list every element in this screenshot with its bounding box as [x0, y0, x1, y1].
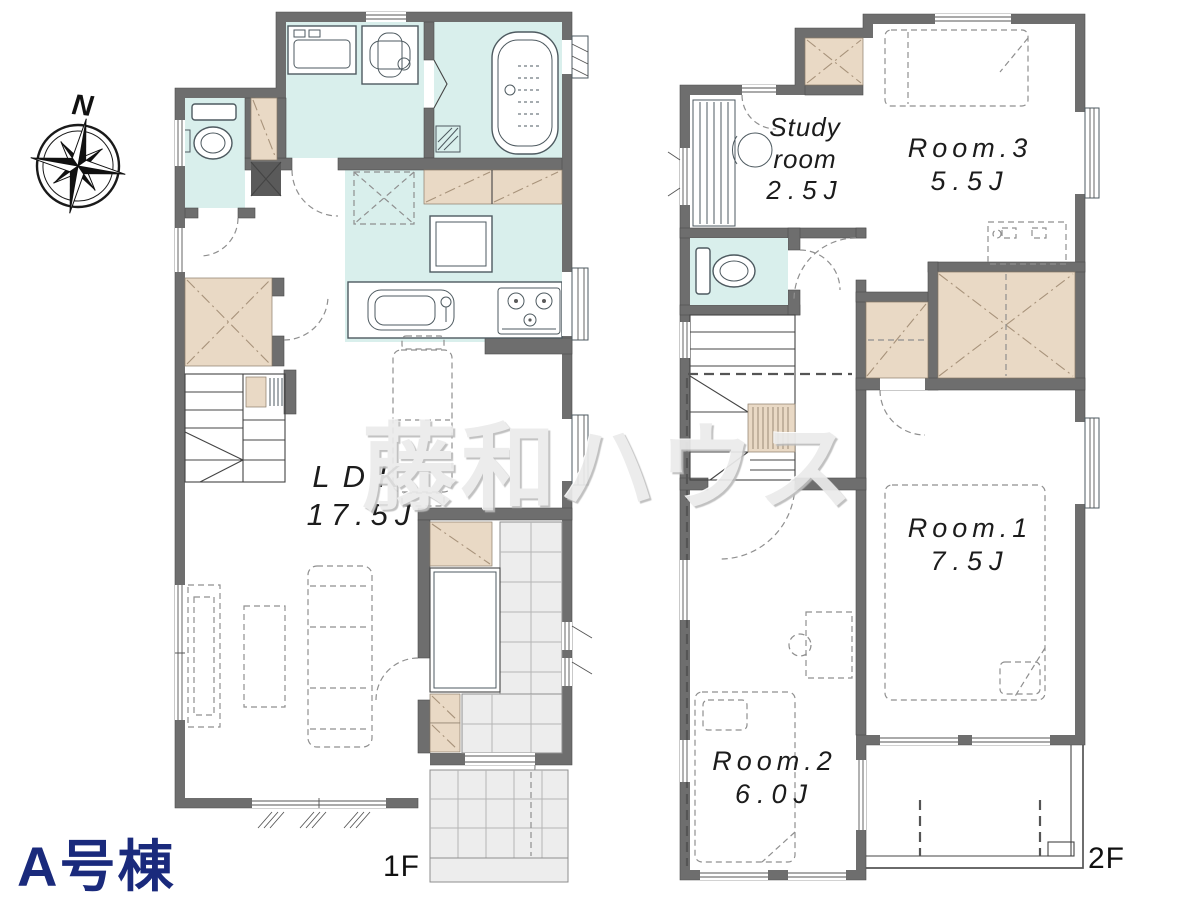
closet-small-2f — [866, 302, 928, 378]
bathtub-icon — [492, 32, 558, 154]
window — [175, 120, 185, 166]
window — [668, 148, 690, 205]
bay-window — [562, 268, 588, 340]
window — [175, 228, 185, 272]
closet-strip-1f — [251, 98, 277, 160]
closet-top-left-2f — [805, 38, 863, 85]
compass-rose — [22, 110, 133, 221]
ldk-size: 17.5J — [272, 496, 452, 534]
window — [700, 870, 768, 880]
storage-closet-1f — [185, 278, 272, 366]
floor-plan-1f — [175, 12, 592, 882]
stair-handrail-2f — [748, 404, 795, 452]
floorplan-canvas: N LDK 17.5J Study room 2.5J Room.3 5.5J … — [0, 0, 1200, 900]
washing-machine-icon — [288, 26, 356, 74]
balcony-door — [880, 735, 958, 745]
ldk-name: LDK — [272, 458, 452, 496]
compass-north-label: N — [70, 89, 94, 124]
window — [788, 870, 846, 880]
kitchen-counter — [348, 282, 562, 338]
bay-window — [1075, 108, 1099, 198]
window — [175, 585, 185, 720]
closet-large-2f — [938, 272, 1075, 378]
room-label-room2: Room.2 6.0J — [692, 745, 857, 811]
balcony-door — [972, 735, 1050, 745]
window — [680, 740, 690, 782]
building-title: A号棟 — [17, 822, 175, 900]
floor-label-2f: 2F — [1088, 842, 1125, 876]
window — [252, 798, 386, 828]
window — [366, 12, 406, 22]
room-label-room1: Room.1 7.5J — [880, 512, 1060, 578]
window — [680, 322, 690, 358]
room-label-room3: Room.3 5.5J — [880, 132, 1060, 198]
floor-label-1f: 1F — [383, 850, 420, 884]
room-label-ldk: LDK 17.5J — [272, 458, 452, 534]
shoe-closet — [430, 694, 460, 752]
pipe-space-1f — [251, 162, 281, 196]
vanity-icon — [362, 26, 418, 84]
bay-window — [1075, 418, 1099, 508]
room1-door-gap — [880, 378, 925, 390]
window — [680, 560, 690, 620]
bay-window — [562, 415, 588, 485]
louver-window — [562, 36, 588, 78]
kitchen-cupboard-closet — [424, 170, 562, 204]
window — [935, 14, 1011, 24]
room-label-study: Study room 2.5J — [740, 112, 870, 207]
kitchen-island — [430, 216, 492, 272]
porch-tiles — [430, 770, 568, 882]
balcony-door — [856, 760, 866, 830]
balcony — [866, 745, 1083, 868]
